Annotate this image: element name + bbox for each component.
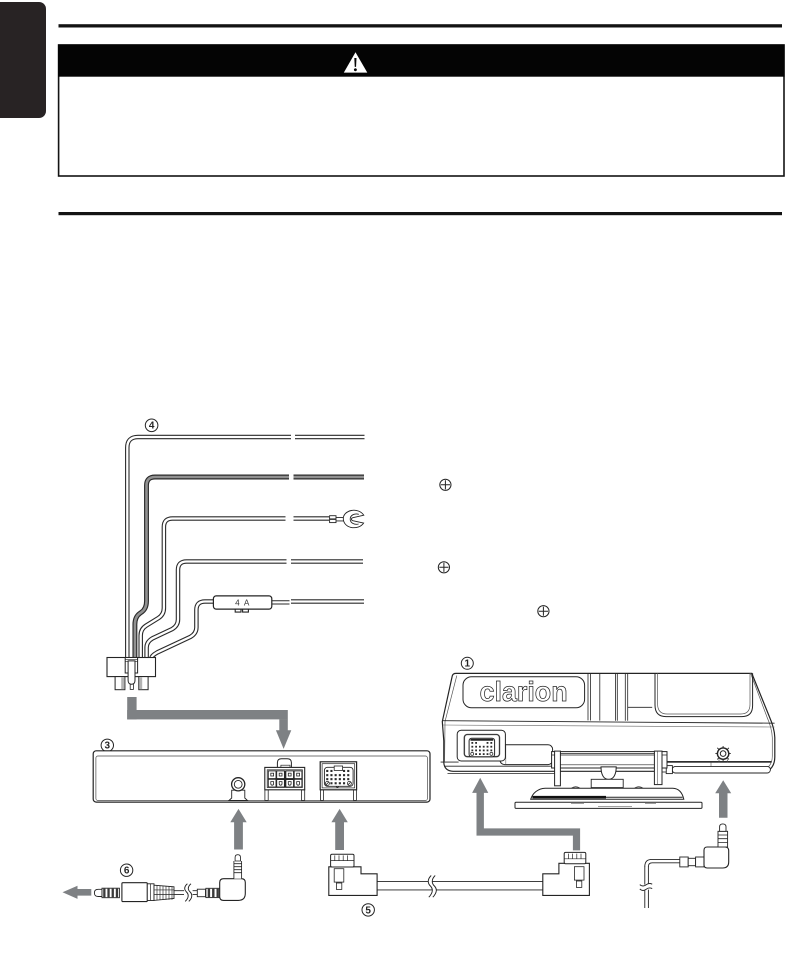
svg-text:1: 1 (465, 659, 471, 670)
svg-text:4 A: 4 A (235, 599, 250, 608)
svg-text:3: 3 (105, 741, 111, 752)
svg-text:6: 6 (124, 866, 130, 877)
svg-text:5: 5 (365, 905, 371, 916)
svg-text:clarion: clarion (480, 676, 568, 707)
svg-text:4: 4 (149, 421, 155, 432)
